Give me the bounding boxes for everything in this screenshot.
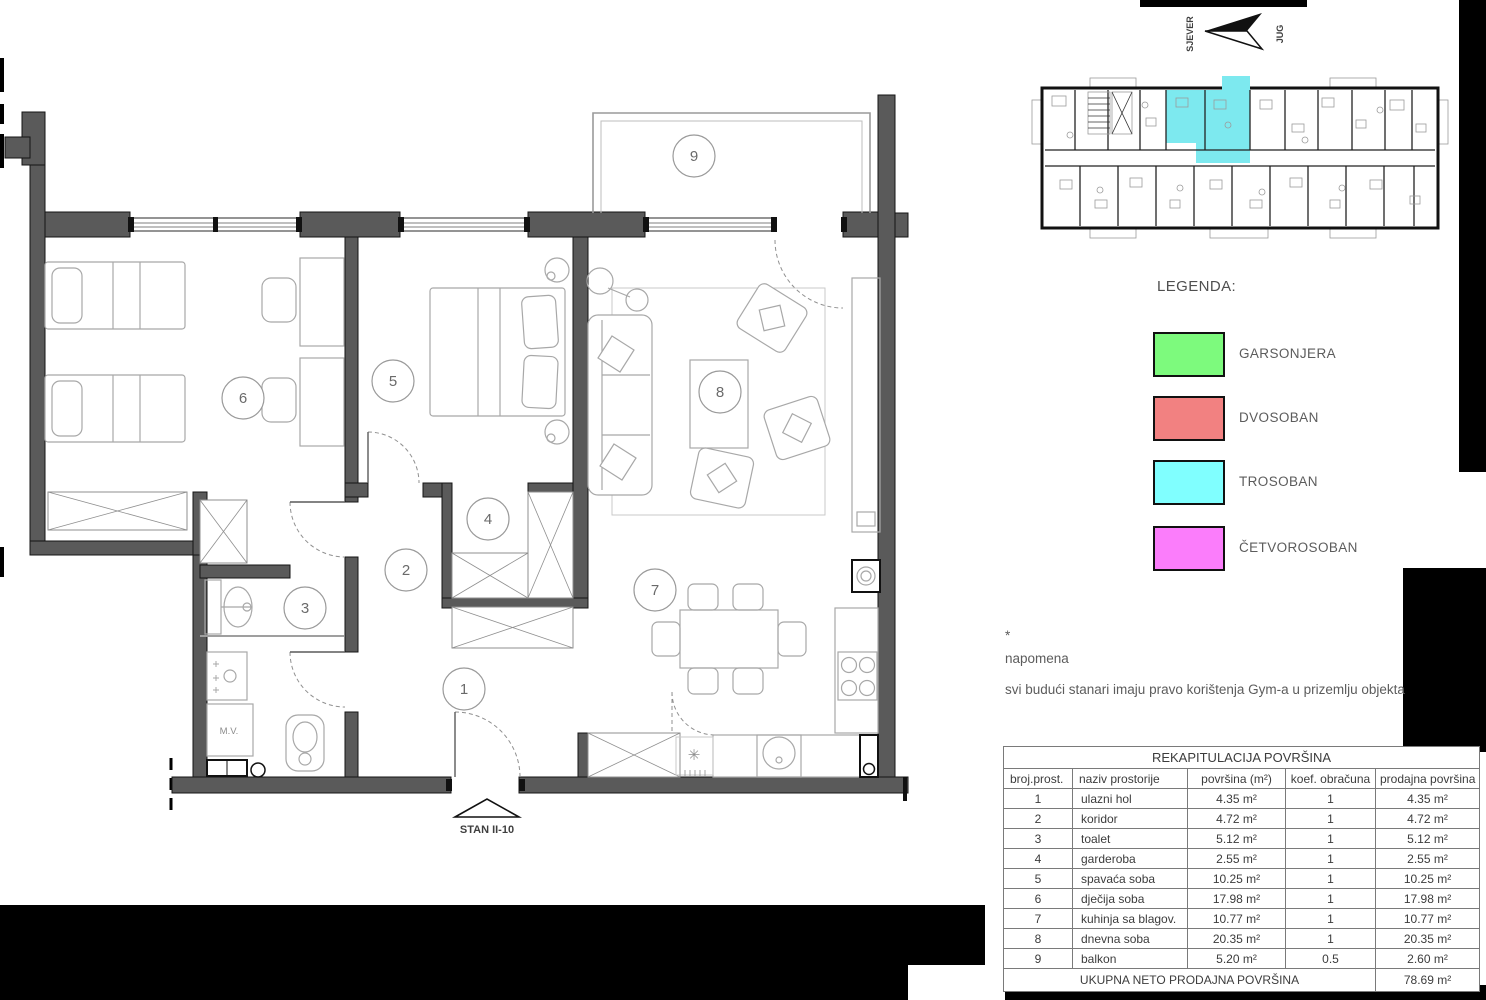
table-title: REKAPITULACIJA POVRŠINA [1004,747,1480,769]
table-cell: 1 [1286,929,1376,949]
entrance-marker: STAN II-10 [455,799,519,836]
table-cell: 1 [1004,789,1073,809]
col-header: prodajna površina [1376,769,1480,789]
legend-item-dvosoban: DVOSOBAN [1153,396,1486,442]
legend-label: GARSONJERA [1239,346,1336,361]
table-cell: 5.12 m² [1188,829,1286,849]
table-cell: 10.77 m² [1376,909,1480,929]
wardrobe-hall-bottom [588,733,680,777]
table-cell: 6 [1004,889,1073,909]
table-cell: 5.12 m² [1376,829,1480,849]
table-cell: 3 [1004,829,1073,849]
table-cell: 4.35 m² [1376,789,1480,809]
table-cell: 17.98 m² [1188,889,1286,909]
legend-item-cetvorosoban: ČETVOROSOBAN [1153,526,1486,572]
note-star: * [1005,628,1405,643]
legend-swatch-garsonjera [1153,332,1225,377]
table-row: 6dječija soba17.98 m²117.98 m² [1004,889,1480,909]
table-row: 3toalet5.12 m²15.12 m² [1004,829,1480,849]
room-number-2: 2 [402,562,410,579]
table-cell: 5.20 m² [1188,949,1286,969]
wardrobe-vertical [528,492,573,598]
room-number-4: 4 [484,511,492,528]
table-cell: kuhinja sa blagov. [1073,909,1188,929]
table-cell: 2.60 m² [1376,949,1480,969]
table-cell: 4.35 m² [1188,789,1286,809]
table-cell: ulazni hol [1073,789,1188,809]
table-cell: 2.55 m² [1376,849,1480,869]
windows [128,217,847,232]
vent-symbol: ✳ [688,747,701,764]
table-cell: 8 [1004,929,1073,949]
room5-furniture [430,258,569,444]
north-label: SJEVER [1185,16,1195,52]
closet-room6 [48,492,187,530]
legend-title: LEGENDA: [1157,278,1236,295]
table-cell: 4 [1004,849,1073,869]
table-cell: 1 [1286,909,1376,929]
legend-item-garsonjera: GARSONJERA [1153,332,1486,378]
table-cell: 7 [1004,909,1073,929]
col-header: koef. obračuna [1286,769,1376,789]
window-band-3 [645,218,775,231]
table-cell: dnevna soba [1073,929,1188,949]
table-row: 9balkon5.20 m²0.52.60 m² [1004,949,1480,969]
legend-item-trosoban: TROSOBAN [1153,460,1486,506]
note-text: svi budući stanari imaju pravo korištenj… [1005,682,1405,697]
legend-swatch-dvosoban [1153,396,1225,441]
table-cell: 4.72 m² [1188,809,1286,829]
table-cell: garderoba [1073,849,1188,869]
table-row: 5spavaća soba10.25 m²110.25 m² [1004,869,1480,889]
table-title-row: REKAPITULACIJA POVRŠINA [1004,747,1480,769]
area-table: REKAPITULACIJA POVRŠINA broj.prost. nazi… [1003,746,1480,992]
table-footer-row: UKUPNA NETO PRODAJNA POVRŠINA 78.69 m² [1004,969,1480,992]
room-number-7: 7 [651,582,659,599]
balcony [593,113,870,213]
table-cell: 2 [1004,809,1073,829]
window-band-2 [400,218,528,231]
table-body: 1ulazni hol4.35 m²14.35 m²2koridor4.72 m… [1004,789,1480,969]
table-row: 8dnevna soba20.35 m²120.35 m² [1004,929,1480,949]
building-overview [1032,76,1448,238]
table-row: 7kuhinja sa blagov.10.77 m²110.77 m² [1004,909,1480,929]
south-label: JUG [1275,25,1285,44]
room-number-5: 5 [389,373,397,390]
table-cell: koridor [1073,809,1188,829]
table-cell: 9 [1004,949,1073,969]
table-footer-label: UKUPNA NETO PRODAJNA POVRŠINA [1004,969,1376,992]
doormat: ✳ [676,737,713,776]
col-header: površina (m²) [1188,769,1286,789]
legend-label: ČETVOROSOBAN [1239,540,1358,555]
wardrobe-hall-upper [452,607,573,648]
shaft [200,500,247,563]
table-cell: 10.77 m² [1188,909,1286,929]
table-cell: 1 [1286,889,1376,909]
room6-furniture [45,258,344,446]
table-cell: toalet [1073,829,1188,849]
page: ✳ M.V. 1 2 3 4 5 6 7 8 [0,0,1486,1000]
kitchen-furniture: ✳ [652,560,880,777]
legend-label: DVOSOBAN [1239,410,1319,425]
table-header-row: broj.prost. naziv prostorije površina (m… [1004,769,1480,789]
table-cell: 5 [1004,869,1073,889]
table-cell: 20.35 m² [1188,929,1286,949]
table-cell: 2.55 m² [1188,849,1286,869]
note-heading: napomena [1005,651,1405,666]
table-footer-value: 78.69 m² [1376,969,1480,992]
north-arrow-lower [1205,31,1262,49]
table-row: 1ulazni hol4.35 m²14.35 m² [1004,789,1480,809]
col-header: naziv prostorije [1073,769,1188,789]
table-cell: dječija soba [1073,889,1188,909]
table-cell: 1 [1286,829,1376,849]
table-cell: 4.72 m² [1376,809,1480,829]
table-cell: 1 [1286,809,1376,829]
legend-label: TROSOBAN [1239,474,1318,489]
wardrobe-garderoba [452,553,528,598]
room-number-3: 3 [301,600,309,617]
room-number-6: 6 [239,390,247,407]
table-cell: 10.25 m² [1376,869,1480,889]
table-cell: 0.5 [1286,949,1376,969]
apartment-label: STAN II-10 [460,824,514,836]
room-number-1: 1 [460,681,468,698]
table-cell: balkon [1073,949,1188,969]
table-cell: 1 [1286,789,1376,809]
north-arrow-upper [1205,13,1262,31]
table-cell: 20.35 m² [1376,929,1480,949]
table-cell: 1 [1286,869,1376,889]
legend-swatch-trosoban [1153,460,1225,505]
col-header: broj.prost. [1004,769,1073,789]
room-number-8: 8 [716,384,724,401]
table-cell: 17.98 m² [1376,889,1480,909]
north-arrow: SJEVER JUG [1185,13,1285,52]
table-row: 4garderoba2.55 m²12.55 m² [1004,849,1480,869]
note: * napomena svi budući stanari imaju prav… [1005,628,1405,697]
table-cell: 10.25 m² [1188,869,1286,889]
room-number-9: 9 [690,148,698,165]
washing-machine-label: M.V. [220,726,239,737]
legend-swatch-cetvorosoban [1153,526,1225,571]
table-row: 2koridor4.72 m²14.72 m² [1004,809,1480,829]
table-cell: 1 [1286,849,1376,869]
dining-chairs [652,584,806,694]
table-cell: spavaća soba [1073,869,1188,889]
